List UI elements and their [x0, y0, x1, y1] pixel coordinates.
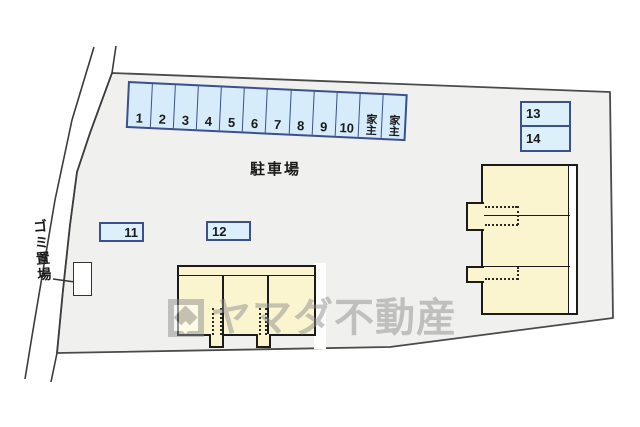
parking-spot-11: 11	[99, 222, 144, 242]
site-plan: 1 2 3 4 5 6 7 8 9 10 家主 家主 駐車場 11 12 13 …	[0, 0, 640, 427]
stall-label: 3	[181, 113, 189, 128]
parking-stall-1: 1	[128, 83, 153, 127]
parking-stall-owner-2: 家主	[381, 95, 405, 139]
parking-stall-8: 8	[289, 91, 314, 135]
unit-divider	[267, 275, 269, 335]
entry-dashed-line	[265, 308, 267, 335]
unit-divider	[482, 266, 570, 267]
entry-dashed-line	[212, 308, 214, 335]
parking-stall-owner-1: 家主	[358, 94, 383, 138]
entry-dashed-line	[485, 278, 518, 280]
parking-stall-3: 3	[174, 85, 199, 129]
parking-spot-13: 13	[522, 103, 569, 127]
spot-label: 14	[526, 131, 540, 146]
parking-stall-9: 9	[312, 92, 337, 136]
garbage-box	[73, 262, 92, 296]
entrance-porch	[256, 334, 271, 348]
stall-label: 7	[274, 118, 282, 133]
unit-divider	[222, 275, 224, 335]
stall-label: 2	[158, 112, 166, 127]
stall-label: 4	[204, 114, 212, 129]
stall-label: 1	[135, 111, 143, 126]
unit-divider	[482, 215, 570, 216]
spot-label: 13	[526, 106, 540, 121]
entry-dashed-line	[220, 308, 222, 335]
parking-stall-7: 7	[266, 90, 291, 134]
building-right-balcony	[568, 166, 576, 313]
parking-stall-6: 6	[243, 89, 268, 133]
stall-label: 9	[320, 120, 328, 135]
building-bottom-balcony-line	[178, 275, 315, 276]
parking-area-label: 駐車場	[250, 158, 301, 179]
stall-label: 6	[251, 117, 259, 132]
parking-spot-12: 12	[206, 221, 251, 241]
entry-dashed-line	[259, 308, 261, 335]
parking-spot-13-14: 13 14	[520, 101, 571, 152]
stall-label: 10	[339, 121, 354, 136]
parking-spot-14: 14	[522, 127, 569, 151]
building-right-body	[481, 164, 578, 315]
parking-stall-4: 4	[197, 86, 222, 130]
entrance-porch	[209, 334, 224, 348]
parking-stall-5: 5	[220, 87, 245, 131]
stall-label: 家主	[364, 113, 376, 136]
parking-stall-10: 10	[335, 93, 360, 137]
building-bottom	[177, 265, 316, 349]
stall-label: 8	[297, 119, 305, 134]
stall-label: 5	[228, 115, 236, 130]
parking-stall-2: 2	[151, 84, 176, 128]
entry-dashed-line	[485, 206, 517, 208]
entry-dashed-line	[485, 224, 518, 226]
stall-label: 家主	[387, 114, 399, 137]
spot-label: 11	[124, 225, 138, 240]
entry-dashed-line	[517, 206, 519, 225]
building-right	[465, 164, 579, 316]
spot-label: 12	[212, 224, 226, 239]
entrance-porch	[466, 202, 484, 231]
entrance-porch	[466, 266, 484, 283]
